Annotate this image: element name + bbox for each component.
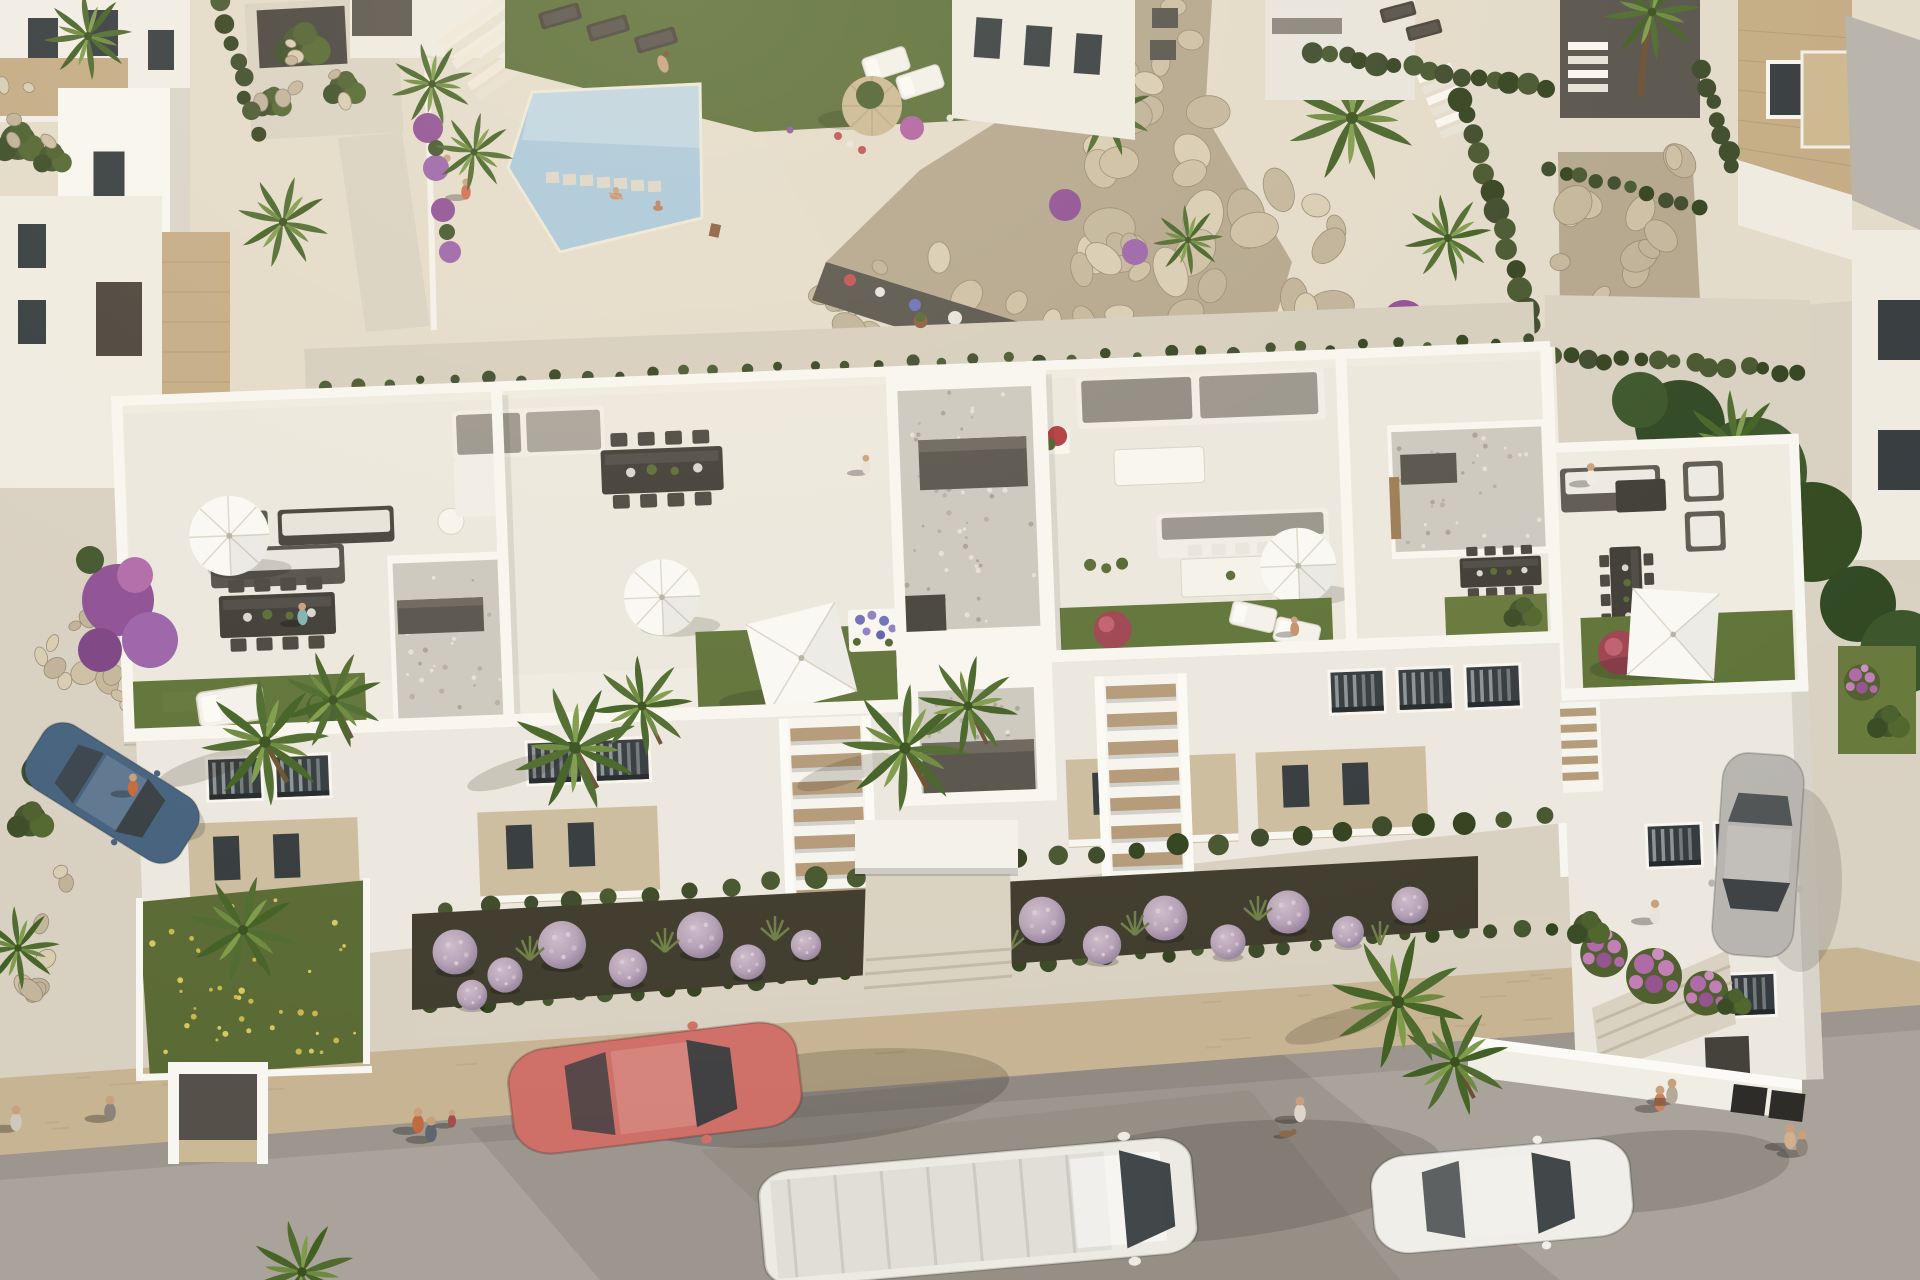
scene-svg	[0, 0, 1920, 1280]
sunlight-glow-overlay	[0, 0, 1920, 1280]
aerial-render-canvas	[0, 0, 1920, 1280]
